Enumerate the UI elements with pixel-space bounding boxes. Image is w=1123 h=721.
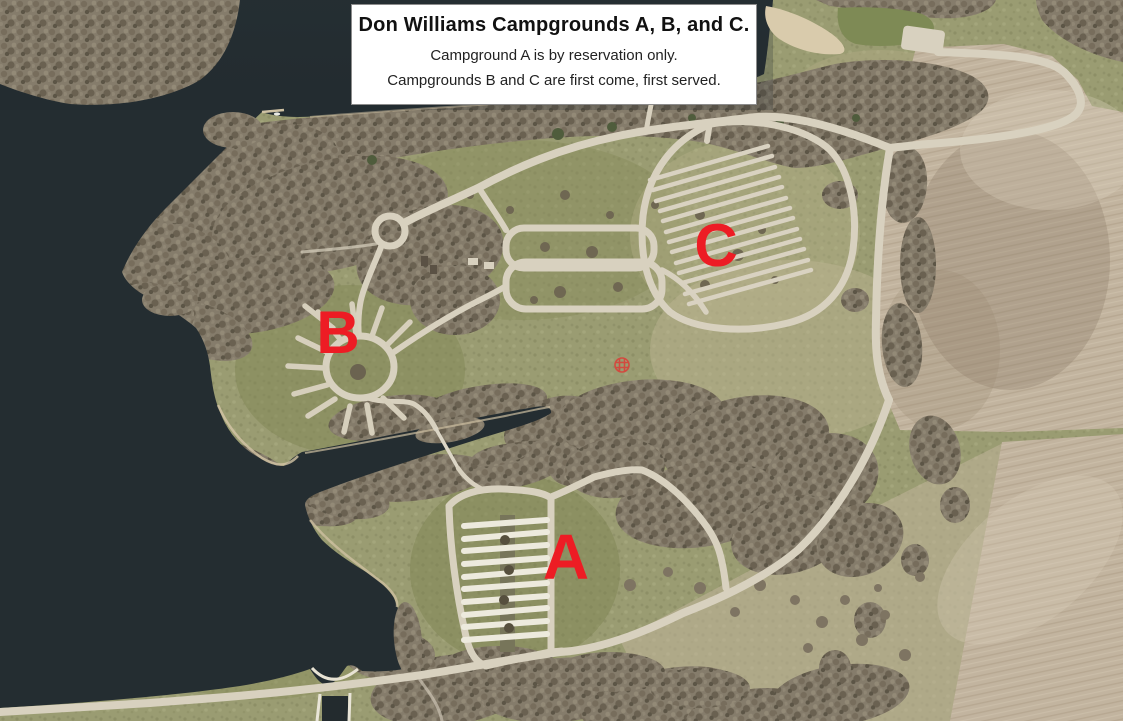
- info-box-line-2: Campgrounds B and C are first come, firs…: [387, 71, 720, 90]
- map-viewport: C B A Don Williams Campgrounds A, B, and…: [0, 0, 1123, 721]
- boat: [274, 112, 280, 115]
- campground-a-label: A: [543, 521, 589, 593]
- aerial-map: C B A: [0, 0, 1123, 721]
- campground-b-label: B: [316, 299, 359, 366]
- info-box-line-1: Campground A is by reservation only.: [430, 46, 677, 65]
- info-box: Don Williams Campgrounds A, B, and C. Ca…: [351, 4, 757, 105]
- campground-b-center-tree: [350, 364, 366, 380]
- info-box-title: Don Williams Campgrounds A, B, and C.: [359, 14, 750, 37]
- campground-c-label: C: [694, 212, 737, 279]
